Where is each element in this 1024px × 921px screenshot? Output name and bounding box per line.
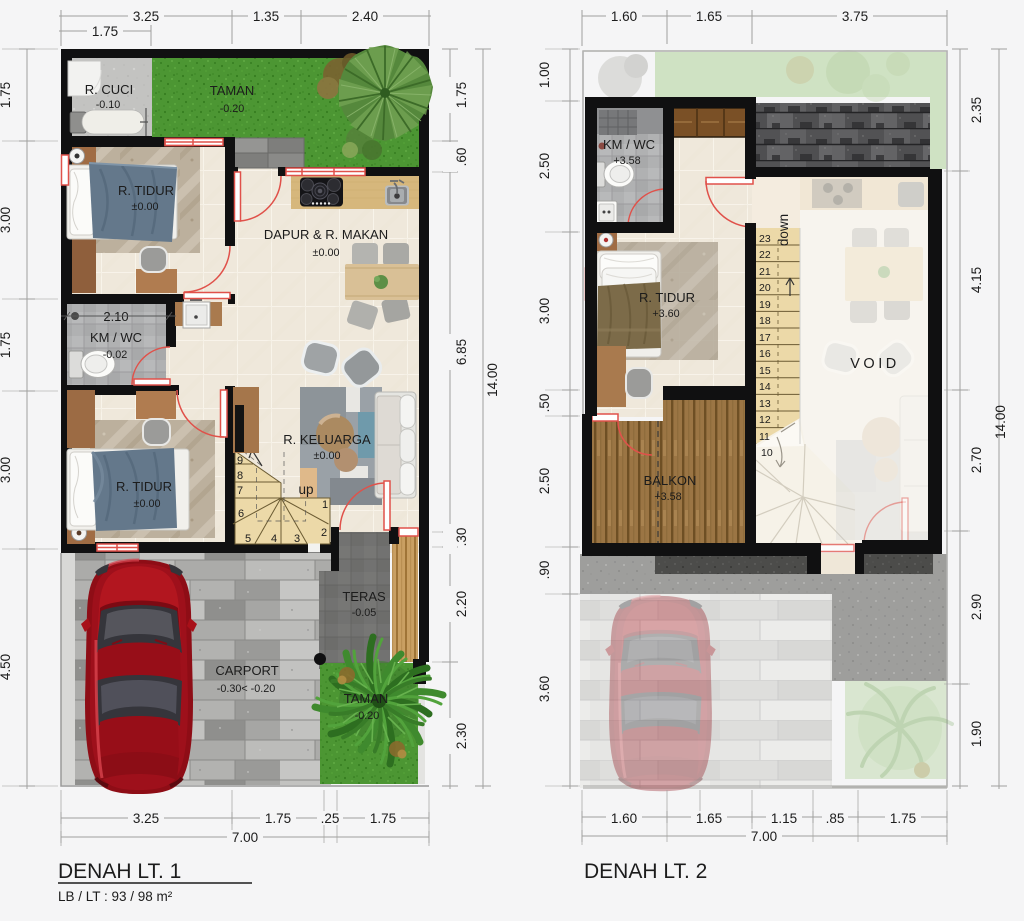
- svg-text:3.00: 3.00: [0, 207, 13, 233]
- svg-text:1.75: 1.75: [0, 82, 13, 108]
- svg-text:8: 8: [237, 470, 243, 482]
- svg-text:±0.00: ±0.00: [313, 247, 340, 259]
- svg-text:R. TIDUR: R. TIDUR: [118, 183, 174, 198]
- svg-text:R. KELUARGA: R. KELUARGA: [283, 432, 371, 447]
- svg-text:3.75: 3.75: [842, 9, 868, 24]
- svg-text:1.65: 1.65: [696, 9, 722, 24]
- svg-text:1.35: 1.35: [253, 9, 279, 24]
- svg-text:17: 17: [759, 332, 771, 344]
- svg-text:3.25: 3.25: [133, 9, 159, 24]
- svg-text:R. TIDUR: R. TIDUR: [116, 479, 172, 494]
- svg-text:2.35: 2.35: [969, 97, 984, 123]
- svg-text:10: 10: [761, 447, 773, 459]
- svg-text:1: 1: [322, 499, 328, 511]
- svg-text:2.90: 2.90: [969, 594, 984, 620]
- svg-text:13: 13: [759, 398, 771, 410]
- svg-text:LB / LT : 93 / 98 m²: LB / LT : 93 / 98 m²: [58, 889, 173, 904]
- svg-text:1.65: 1.65: [696, 811, 722, 826]
- svg-text:-0.20: -0.20: [220, 103, 245, 115]
- svg-text:5: 5: [245, 533, 251, 545]
- svg-text:14.00: 14.00: [485, 363, 500, 397]
- svg-text:14: 14: [759, 381, 771, 393]
- svg-text:DENAH LT. 2: DENAH LT. 2: [584, 860, 707, 883]
- svg-text:CARPORT: CARPORT: [215, 663, 278, 678]
- svg-text:2.40: 2.40: [352, 9, 378, 24]
- svg-text:14.00: 14.00: [993, 405, 1008, 439]
- svg-text:-0.30< -0.20: -0.30< -0.20: [217, 683, 276, 695]
- svg-text:7.00: 7.00: [232, 830, 258, 845]
- svg-text:1.75: 1.75: [92, 24, 118, 39]
- svg-text:2: 2: [321, 527, 327, 539]
- svg-text:7.00: 7.00: [751, 829, 777, 844]
- svg-text:.60: .60: [454, 148, 469, 167]
- svg-text:TAMAN: TAMAN: [210, 83, 255, 98]
- svg-text:4: 4: [271, 533, 277, 545]
- svg-text:2.20: 2.20: [454, 591, 469, 617]
- svg-text:9: 9: [237, 455, 243, 467]
- svg-text:R. CUCI: R. CUCI: [85, 82, 133, 97]
- svg-text:-0.20: -0.20: [355, 710, 380, 722]
- svg-text:KM / WC: KM / WC: [90, 330, 142, 345]
- svg-text:1.75: 1.75: [0, 332, 13, 358]
- svg-text:VOID: VOID: [850, 356, 899, 372]
- svg-text:7: 7: [237, 485, 243, 497]
- svg-text:2.50: 2.50: [537, 153, 552, 179]
- svg-text:TERAS: TERAS: [342, 589, 386, 604]
- svg-text:19: 19: [759, 299, 771, 311]
- svg-text:4.15: 4.15: [969, 267, 984, 293]
- svg-text:.30: .30: [454, 528, 469, 547]
- svg-text:18: 18: [759, 315, 771, 327]
- svg-text:20: 20: [759, 282, 771, 294]
- svg-text:1.75: 1.75: [265, 811, 291, 826]
- svg-text:DAPUR & R. MAKAN: DAPUR & R. MAKAN: [264, 227, 388, 242]
- svg-text:3.00: 3.00: [537, 298, 552, 324]
- svg-text:1.00: 1.00: [537, 62, 552, 88]
- svg-text:2.30: 2.30: [454, 723, 469, 749]
- svg-text:+3.58: +3.58: [613, 155, 640, 167]
- svg-text:-0.10: -0.10: [96, 99, 121, 111]
- svg-text:11: 11: [759, 431, 770, 443]
- svg-text:3: 3: [294, 533, 300, 545]
- svg-text:2.50: 2.50: [537, 468, 552, 494]
- svg-text:-0.02: -0.02: [103, 349, 128, 361]
- svg-text:down: down: [776, 214, 791, 246]
- svg-text:±0.00: ±0.00: [314, 450, 341, 462]
- svg-text:.85: .85: [826, 811, 845, 826]
- svg-text:3.60: 3.60: [537, 676, 552, 702]
- svg-text:21: 21: [759, 266, 771, 278]
- svg-text:.90: .90: [537, 561, 552, 580]
- svg-text:R. TIDUR: R. TIDUR: [639, 290, 695, 305]
- svg-text:DENAH LT. 1: DENAH LT. 1: [58, 860, 181, 883]
- svg-text:up: up: [298, 482, 313, 497]
- svg-text:22: 22: [759, 249, 771, 261]
- svg-text:1.90: 1.90: [969, 721, 984, 747]
- svg-text:BALKON: BALKON: [644, 473, 697, 488]
- svg-text:2.70: 2.70: [969, 447, 984, 473]
- svg-text:±0.00: ±0.00: [134, 498, 161, 510]
- svg-text:-0.05: -0.05: [352, 607, 377, 619]
- svg-text:3.00: 3.00: [0, 457, 13, 483]
- svg-text:+3.60: +3.60: [652, 308, 679, 320]
- svg-text:1.75: 1.75: [890, 811, 916, 826]
- svg-text:KM / WC: KM / WC: [603, 137, 655, 152]
- svg-text:23: 23: [759, 233, 771, 245]
- svg-text:4.50: 4.50: [0, 654, 13, 680]
- svg-text:6.85: 6.85: [454, 339, 469, 365]
- svg-text:1.75: 1.75: [370, 811, 396, 826]
- svg-text:TAMAN: TAMAN: [344, 691, 389, 706]
- svg-text:1.75: 1.75: [454, 82, 469, 108]
- svg-text:+3.58: +3.58: [654, 491, 681, 503]
- svg-text:15: 15: [759, 365, 771, 377]
- svg-text:6: 6: [238, 508, 244, 520]
- svg-text:±0.00: ±0.00: [132, 201, 159, 213]
- svg-text:.50: .50: [537, 394, 552, 413]
- svg-text:12: 12: [759, 414, 771, 426]
- svg-text:3.25: 3.25: [133, 811, 159, 826]
- svg-text:1.15: 1.15: [771, 811, 797, 826]
- svg-text:1.60: 1.60: [611, 811, 637, 826]
- svg-text:.25: .25: [321, 811, 340, 826]
- svg-text:16: 16: [759, 348, 771, 360]
- svg-text:1.60: 1.60: [611, 9, 637, 24]
